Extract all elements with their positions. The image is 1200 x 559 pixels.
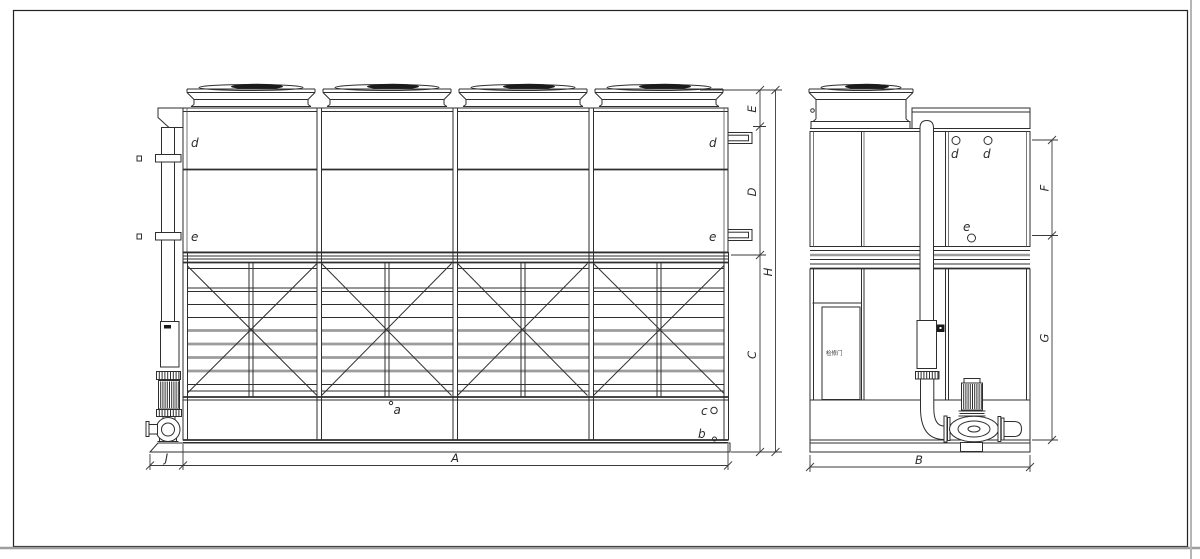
pump-volute-side — [950, 416, 999, 442]
dim-A: A — [450, 451, 459, 465]
dim-H: H — [761, 267, 775, 276]
front-upper-casing — [183, 108, 728, 252]
label-e-side: e — [963, 220, 970, 234]
pipe-flange — [156, 233, 182, 241]
dim-G: G — [1038, 333, 1052, 342]
technical-drawing: a c b d e d e — [0, 0, 1200, 559]
label-e-right: e — [709, 230, 716, 244]
label-d2: d — [983, 147, 991, 161]
label-d1: d — [951, 147, 959, 161]
dim-D: D — [745, 187, 759, 196]
flange-coupling — [157, 372, 181, 380]
drawing-frame — [0, 0, 1200, 559]
dim-E: E — [745, 105, 759, 113]
marker-a — [389, 401, 392, 404]
pump-volute-front — [146, 418, 180, 442]
pipe-elbow-top — [158, 108, 183, 128]
base-skirt-front — [150, 443, 730, 452]
valve-box-side — [917, 321, 937, 369]
label-d-left: d — [191, 136, 199, 150]
dim-B: B — [915, 453, 923, 467]
label-d-right: d — [709, 136, 717, 150]
label-c: c — [701, 404, 708, 418]
dim-F: F — [1038, 184, 1052, 191]
fan-shrouds-front — [187, 84, 723, 107]
frame-columns — [183, 253, 729, 441]
label-e-left: e — [191, 230, 198, 244]
label-b: b — [698, 427, 706, 441]
side-view: 检修门 d d e — [809, 84, 1058, 472]
label-a: a — [394, 403, 401, 417]
connection-stubs-front — [728, 133, 752, 241]
dim-C: C — [745, 351, 759, 359]
dim-J: J — [163, 451, 169, 465]
pipe-flange — [156, 155, 182, 163]
flange-coupling — [157, 410, 182, 417]
fan-shroud-side — [809, 84, 913, 122]
circulation-pipe-front — [137, 108, 183, 442]
drawing-canvas: a c b d e d e — [0, 0, 1200, 559]
connection-c — [711, 407, 717, 413]
front-view: a c b d e d e — [137, 84, 782, 470]
door-label: 检修门 — [826, 349, 843, 357]
